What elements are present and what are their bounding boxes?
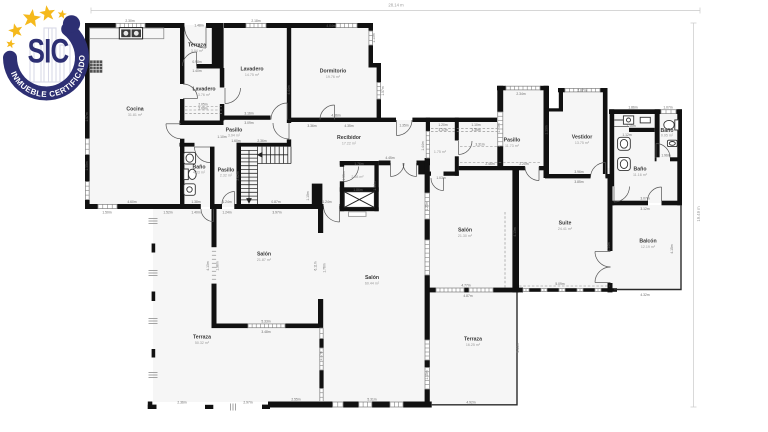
svg-text:3.31m: 3.31m [475,142,484,146]
svg-text:1.12m: 1.12m [622,133,631,137]
svg-text:4.04m: 4.04m [326,24,335,28]
svg-text:4.44m: 4.44m [287,85,291,94]
svg-text:1.07m: 1.07m [663,105,672,109]
svg-text:4.13m: 4.13m [513,227,517,236]
svg-text:Dormitorio: Dormitorio [320,69,347,75]
svg-text:4.15m: 4.15m [670,244,674,253]
svg-text:1.57m: 1.57m [381,86,385,95]
svg-text:Pasillo: Pasillo [226,128,243,134]
svg-text:Terraza: Terraza [464,337,482,343]
svg-text:4.14m: 4.14m [607,242,611,251]
svg-text:2.32 m²: 2.32 m² [220,174,233,178]
svg-text:3.04 m²: 3.04 m² [191,49,204,53]
svg-text:1.76m: 1.76m [323,263,327,272]
svg-text:2.36m: 2.36m [177,401,186,405]
svg-text:5.31m: 5.31m [367,397,376,401]
svg-text:2.55m: 2.55m [291,397,300,401]
svg-text:5.33m: 5.33m [261,319,270,323]
svg-text:1.24m: 1.24m [322,200,331,204]
svg-text:2.98 m²: 2.98 m² [351,175,364,179]
svg-text:3.09m: 3.09m [244,121,253,125]
svg-text:19.49 m: 19.49 m [696,206,701,222]
svg-text:2.46m: 2.46m [485,162,494,166]
svg-text:1.98m: 1.98m [216,261,220,270]
svg-text:2.18m: 2.18m [251,19,260,23]
svg-text:1.20m: 1.20m [438,123,447,127]
svg-text:3.96m: 3.96m [574,170,583,174]
svg-text:0.98m: 0.98m [192,60,201,64]
svg-text:60.44 m²: 60.44 m² [365,282,380,286]
svg-text:1.13m: 1.13m [545,125,549,134]
svg-text:3.12m: 3.12m [640,207,649,211]
svg-text:1.50m: 1.50m [102,211,111,215]
svg-text:2.20m: 2.20m [519,162,528,166]
svg-text:1.03m: 1.03m [436,176,445,180]
svg-text:Lavadero: Lavadero [240,67,263,73]
svg-text:11.73 m²: 11.73 m² [505,144,520,148]
svg-text:21.87 m²: 21.87 m² [257,258,272,262]
svg-text:Lavadero: Lavadero [192,87,215,93]
svg-text:0.95 m²: 0.95 m² [661,134,674,138]
svg-text:1.30m: 1.30m [85,161,89,170]
svg-text:Vestidor: Vestidor [572,135,592,141]
svg-text:2.09m: 2.09m [198,106,207,110]
svg-text:1.75 m²: 1.75 m² [434,150,447,154]
svg-text:Baño: Baño [193,165,206,171]
svg-text:SIC: SIC [28,32,70,70]
svg-text:4.35m: 4.35m [344,124,353,128]
svg-text:1.35m: 1.35m [342,171,346,180]
svg-text:4.32m: 4.32m [640,293,649,297]
svg-text:3.48m: 3.48m [261,330,270,334]
svg-text:5.09m: 5.09m [555,282,564,286]
svg-text:31.81 m²: 31.81 m² [128,113,143,117]
svg-text:1.40m: 1.40m [192,69,201,73]
svg-text:5.08m: 5.08m [89,60,93,69]
svg-text:Suite: Suite [559,221,572,227]
svg-text:1.17m: 1.17m [319,351,323,360]
svg-text:3.16m: 3.16m [244,112,253,116]
svg-text:2.30m: 2.30m [125,19,134,23]
svg-text:1.15m: 1.15m [626,124,635,128]
svg-text:1.35m: 1.35m [399,123,408,127]
svg-text:1.40m: 1.40m [191,211,200,215]
svg-text:3.76 m²: 3.76 m² [198,93,211,97]
svg-text:2.87m: 2.87m [577,89,586,93]
svg-text:1.07m: 1.07m [85,112,89,121]
svg-text:1.10m: 1.10m [471,123,480,127]
svg-text:1.10m: 1.10m [217,135,226,139]
svg-text:14.75 m²: 14.75 m² [245,73,260,77]
svg-text:4.92m: 4.92m [466,400,475,404]
svg-text:28.14 m: 28.14 m [388,3,404,8]
svg-text:19.76 m²: 19.76 m² [326,75,341,79]
svg-text:4.36m: 4.36m [331,114,340,118]
svg-text:Baño: Baño [634,167,647,173]
svg-text:2.97m: 2.97m [243,401,252,405]
svg-text:1.73m: 1.73m [497,123,501,132]
svg-text:1.86m: 1.86m [353,188,362,192]
svg-text:1.10m: 1.10m [306,191,310,200]
svg-text:0.87m: 0.87m [271,200,280,204]
svg-text:21.30 m²: 21.30 m² [458,234,473,238]
svg-text:5.44m: 5.44m [516,343,520,352]
svg-text:1.60m: 1.60m [231,139,240,143]
svg-text:Terraza: Terraza [188,43,206,49]
svg-text:2.62m: 2.62m [236,171,240,180]
svg-text:3.85m: 3.85m [574,180,583,184]
svg-text:4.13m: 4.13m [206,261,210,270]
svg-text:6.11m: 6.11m [314,261,318,270]
svg-text:50.32 m²: 50.32 m² [195,341,210,345]
svg-text:2.34m: 2.34m [516,92,525,96]
svg-text:4.87m: 4.87m [463,294,472,298]
svg-text:Pasillo: Pasillo [504,138,521,144]
svg-text:Balcón: Balcón [639,239,656,245]
svg-text:2.36m: 2.36m [257,139,266,143]
svg-text:11.16 m²: 11.16 m² [633,173,648,177]
svg-text:Salón: Salón [257,252,271,258]
svg-text:3.07m: 3.07m [640,197,649,201]
svg-text:1.86m: 1.86m [628,105,637,109]
svg-text:1.24m: 1.24m [222,200,231,204]
svg-text:16.25 m²: 16.25 m² [466,343,481,347]
svg-text:1.38m: 1.38m [191,200,200,204]
svg-text:13.75 m²: 13.75 m² [575,141,590,145]
svg-text:3.31m: 3.31m [438,128,447,132]
svg-text:1.24m: 1.24m [222,211,231,215]
svg-text:Pasillo: Pasillo [218,168,235,174]
svg-text:1.20m: 1.20m [425,201,429,210]
svg-text:Terraza: Terraza [193,335,211,341]
svg-text:1.13m: 1.13m [372,33,376,42]
svg-text:1.15m: 1.15m [425,370,429,379]
svg-text:4.03 m²: 4.03 m² [193,171,206,175]
svg-text:4.60m: 4.60m [127,200,136,204]
svg-text:3.97m: 3.97m [272,211,281,215]
svg-text:3.35m: 3.35m [471,128,480,132]
svg-text:3.94 m²: 3.94 m² [228,134,241,138]
svg-text:Salón: Salón [458,228,472,234]
svg-text:4.45m: 4.45m [385,156,394,160]
svg-text:1.96m: 1.96m [661,153,670,157]
svg-text:24.41 m²: 24.41 m² [558,227,573,231]
svg-text:1.76m: 1.76m [354,162,363,166]
svg-text:3.36m: 3.36m [307,124,316,128]
svg-text:4.77m: 4.77m [461,283,470,287]
svg-text:1.52m: 1.52m [163,211,172,215]
svg-text:17.22 m²: 17.22 m² [342,142,357,146]
svg-text:Salón: Salón [365,275,379,281]
svg-text:Cocina: Cocina [126,107,143,113]
svg-text:12.19 m²: 12.19 m² [641,245,656,249]
svg-text:1.44m: 1.44m [373,181,377,190]
svg-text:1.44m: 1.44m [421,141,425,150]
svg-text:1.48m: 1.48m [194,23,203,27]
svg-text:Recibidor: Recibidor [337,135,361,141]
